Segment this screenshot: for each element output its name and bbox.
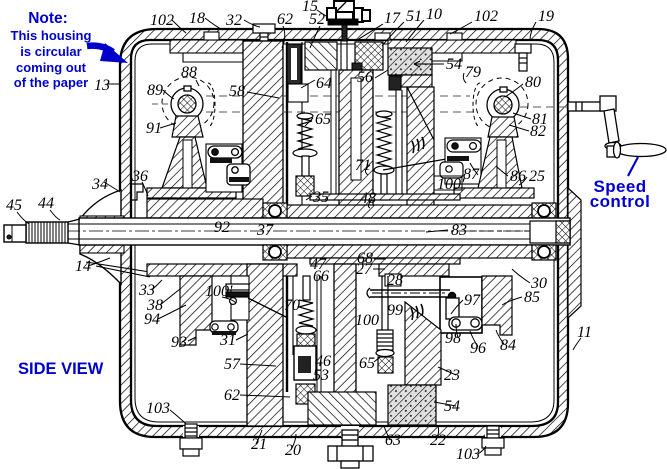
svg-text:control: control bbox=[590, 192, 650, 211]
svg-text:57: 57 bbox=[224, 356, 241, 373]
svg-text:86: 86 bbox=[510, 168, 526, 185]
svg-text:70: 70 bbox=[284, 297, 300, 314]
svg-text:of the paper: of the paper bbox=[14, 75, 88, 90]
svg-text:53: 53 bbox=[313, 367, 329, 384]
svg-text:64: 64 bbox=[316, 75, 332, 92]
svg-text:56: 56 bbox=[357, 69, 373, 86]
svg-text:65: 65 bbox=[315, 111, 331, 128]
svg-text:85: 85 bbox=[524, 289, 540, 306]
svg-text:82: 82 bbox=[530, 123, 546, 140]
svg-text:31: 31 bbox=[219, 332, 236, 349]
svg-text:21: 21 bbox=[251, 436, 267, 453]
svg-text:13: 13 bbox=[94, 77, 110, 94]
svg-text:102: 102 bbox=[474, 8, 498, 25]
svg-text:37: 37 bbox=[256, 222, 274, 239]
svg-text:84: 84 bbox=[500, 337, 516, 354]
svg-text:SIDE VIEW: SIDE VIEW bbox=[18, 360, 104, 378]
svg-text:66: 66 bbox=[313, 268, 329, 285]
svg-text:14: 14 bbox=[75, 258, 91, 275]
svg-text:17: 17 bbox=[384, 10, 401, 27]
svg-text:100': 100' bbox=[437, 176, 465, 193]
svg-text:34: 34 bbox=[91, 176, 108, 193]
svg-text:27: 27 bbox=[356, 261, 373, 278]
svg-text:83: 83 bbox=[451, 222, 467, 239]
svg-text:54: 54 bbox=[444, 398, 460, 415]
svg-text:102: 102 bbox=[150, 12, 174, 29]
svg-text:80: 80 bbox=[525, 74, 541, 91]
svg-text:Note:: Note: bbox=[28, 10, 68, 27]
svg-text:20: 20 bbox=[285, 442, 301, 459]
svg-text:91: 91 bbox=[146, 120, 162, 137]
svg-text:71: 71 bbox=[355, 157, 371, 174]
svg-text:94: 94 bbox=[144, 311, 160, 328]
svg-text:19: 19 bbox=[538, 8, 554, 25]
svg-text:88: 88 bbox=[181, 64, 197, 81]
svg-text:45: 45 bbox=[6, 197, 22, 214]
svg-text:11: 11 bbox=[577, 324, 592, 341]
svg-text:100: 100 bbox=[355, 312, 379, 329]
svg-text:98: 98 bbox=[445, 330, 461, 347]
svg-text:18: 18 bbox=[189, 10, 205, 27]
svg-text:96: 96 bbox=[470, 340, 486, 357]
svg-text:93: 93 bbox=[171, 334, 187, 351]
svg-text:22: 22 bbox=[430, 432, 446, 449]
svg-text:35: 35 bbox=[312, 189, 329, 206]
svg-text:23: 23 bbox=[444, 367, 460, 384]
svg-text:99: 99 bbox=[387, 302, 403, 319]
svg-text:62: 62 bbox=[224, 387, 240, 404]
svg-text:This housing: This housing bbox=[11, 28, 92, 43]
svg-text:87: 87 bbox=[463, 166, 480, 183]
svg-text:100': 100' bbox=[205, 283, 233, 300]
svg-text:97: 97 bbox=[464, 292, 481, 309]
svg-text:58: 58 bbox=[229, 83, 245, 100]
svg-text:92: 92 bbox=[214, 219, 230, 236]
svg-text:62: 62 bbox=[277, 11, 293, 28]
svg-text:44: 44 bbox=[38, 195, 54, 212]
svg-text:36: 36 bbox=[131, 168, 148, 185]
svg-text:103: 103 bbox=[456, 446, 480, 463]
svg-text:51: 51 bbox=[406, 8, 422, 25]
svg-text:48: 48 bbox=[360, 190, 376, 207]
svg-text:coming out: coming out bbox=[16, 60, 87, 75]
svg-text:63: 63 bbox=[385, 432, 401, 449]
svg-text:54: 54 bbox=[446, 56, 462, 73]
svg-text:103: 103 bbox=[146, 400, 170, 417]
svg-text:32: 32 bbox=[225, 12, 242, 29]
svg-text:65: 65 bbox=[359, 355, 375, 372]
svg-text:10: 10 bbox=[426, 6, 442, 23]
svg-text:25: 25 bbox=[529, 168, 545, 185]
svg-text:28: 28 bbox=[387, 272, 403, 289]
svg-text:79: 79 bbox=[465, 64, 481, 81]
svg-text:89: 89 bbox=[147, 82, 163, 99]
svg-text:52: 52 bbox=[309, 11, 325, 28]
svg-text:is circular: is circular bbox=[20, 44, 81, 59]
